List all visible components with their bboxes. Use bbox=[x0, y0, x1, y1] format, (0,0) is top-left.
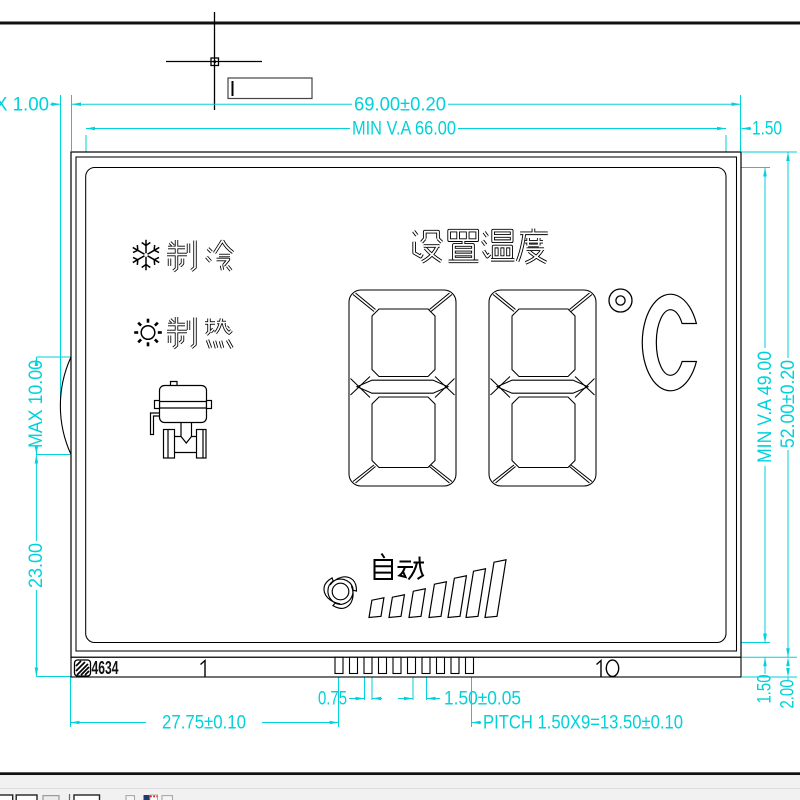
svg-text:X 1.00: X 1.00 bbox=[0, 94, 49, 115]
svg-text:1.50±0.05: 1.50±0.05 bbox=[444, 689, 521, 710]
svg-text:MAX 10.00: MAX 10.00 bbox=[26, 360, 47, 448]
svg-text:69.00±0.20: 69.00±0.20 bbox=[354, 94, 446, 115]
svg-text:PITCH 1.50X9=13.50±0.10: PITCH 1.50X9=13.50±0.10 bbox=[483, 713, 683, 734]
svg-text:1.50: 1.50 bbox=[755, 675, 776, 704]
svg-text:52.00±0.20: 52.00±0.20 bbox=[778, 360, 799, 448]
svg-text:2.00: 2.00 bbox=[778, 680, 799, 709]
svg-text:0.75: 0.75 bbox=[318, 689, 347, 710]
svg-text:4634: 4634 bbox=[92, 658, 119, 678]
svg-text:23.00: 23.00 bbox=[26, 543, 47, 588]
svg-text:1.50: 1.50 bbox=[752, 119, 782, 140]
svg-text:27.75±0.10: 27.75±0.10 bbox=[162, 713, 246, 734]
svg-text:MIN V.A 49.00: MIN V.A 49.00 bbox=[755, 351, 776, 463]
svg-text:MIN V.A 66.00: MIN V.A 66.00 bbox=[352, 119, 456, 140]
